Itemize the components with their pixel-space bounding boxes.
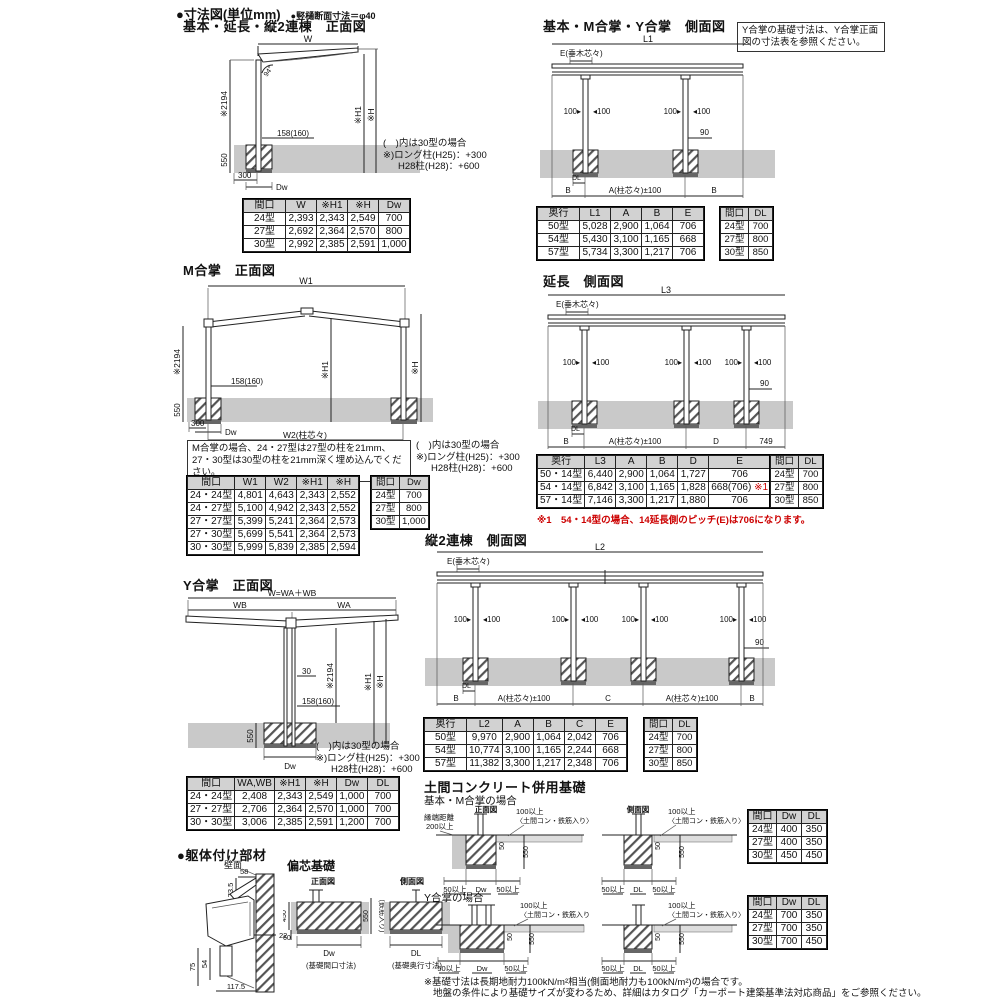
dim-pitch: ◂100: [651, 615, 669, 624]
doma-rebar: 〈土間コン・鉄筋入り〉: [668, 910, 742, 919]
dim-pitch: 100▸: [725, 358, 742, 367]
dim-dl: DL: [411, 949, 422, 958]
dim-dw: Dw: [225, 428, 237, 437]
dim-50: 50: [655, 842, 662, 850]
dim-550: 550: [679, 846, 686, 858]
dim-e: E(垂木芯々): [560, 48, 603, 58]
dim-w: W=WA＋WB: [268, 588, 317, 598]
footer-note: ※基礎寸法は長期地耐力100kN/m²相当(側面地耐力も100kN/m²)の場合…: [424, 977, 927, 999]
dim-pitch: 100▸: [564, 107, 581, 116]
dim-550: 550: [220, 153, 229, 167]
dim-450: 450: [283, 910, 288, 922]
dim-embed: 158(160): [302, 697, 334, 706]
dim-dw: Dw: [284, 762, 296, 771]
dim-550: 550: [363, 910, 370, 922]
dim-min50: 50以上: [652, 885, 676, 894]
side-basic-title: 基本・M合掌・Y合掌 側面図: [543, 16, 726, 35]
dim-300: 300: [238, 171, 252, 180]
side-ext-side-table: 間口DL24型70027型80030型850: [770, 455, 823, 508]
doma-over100: 100以上: [516, 807, 544, 816]
dim-dw-caption: (基礎間口寸法): [306, 960, 356, 970]
dim-dw: Dw: [276, 183, 288, 192]
dim-b: B: [711, 186, 716, 195]
side-basic-side-table: 間口DL24型70027型80030型850: [720, 207, 773, 260]
dim-pitch: 100▸: [664, 107, 681, 116]
front-basic-table: 間口W※H1※HDw24型2,3932,3432,54970027型2,6922…: [243, 199, 410, 252]
dim-h: ※H: [410, 361, 420, 374]
m-gassho-notes: ( )内は30型の場合 ※)ロング柱(H25)：+300 H28柱(H28)：+…: [416, 440, 520, 475]
doma-over100: 100以上: [520, 901, 548, 910]
dim-pitch: ◂100: [693, 107, 711, 116]
doma-edge-value: 200以上: [426, 822, 454, 831]
dim-dl: DL: [633, 885, 643, 894]
dim-h1: ※H1: [363, 673, 373, 691]
dim-50: 50: [655, 933, 662, 941]
dim-300: 300: [191, 419, 205, 428]
m-gassho-side-table: 間口Dw24型70027型80030型1,000: [371, 476, 429, 529]
dim-e: E(垂木芯々): [556, 299, 599, 309]
dim-wb: WB: [233, 600, 247, 610]
doma-front-label: 正面図: [475, 805, 498, 814]
dim-2194: ※2194: [172, 349, 182, 375]
dim-dl: DL: [462, 683, 471, 690]
dim-b: B: [749, 694, 754, 703]
dim-wa: WA: [337, 600, 351, 610]
dim-angle: 94°: [262, 65, 275, 78]
dim-pitch: ◂100: [754, 358, 772, 367]
dim-min50: 50以上: [504, 964, 528, 973]
dim-pitch: ◂100: [694, 358, 712, 367]
dim-50: 50: [507, 933, 514, 941]
dim-a: A(柱芯々)±100: [498, 693, 551, 703]
front-basic-notes: ( )内は30型の場合 ※)ロング柱(H25)：+300 H28柱(H28)：+…: [383, 138, 487, 173]
dim-dl: DL: [633, 964, 643, 973]
y-gassho-notes: ( )内は30型の場合 ※)ロング柱(H25)：+300 H28柱(H28)：+…: [316, 741, 420, 776]
dim-a: A(柱芯々)±100: [609, 185, 662, 195]
doma-basic-front-drawing: 正面図 縁端距離 200以上 100以上 〈土間コン・鉄筋入り〉 50 550 …: [424, 804, 589, 898]
dim-e: E(垂木芯々): [447, 556, 490, 566]
dim-550: 550: [173, 403, 182, 417]
dim-b: B: [563, 437, 568, 446]
side-ext-table: 奥行L3ABDE50・14型6,4402,9001,0641,72770654・…: [537, 455, 771, 508]
dim-pitch: ◂100: [749, 615, 767, 624]
dim-min50: 50以上: [437, 964, 461, 973]
side-2ren-side-table: 間口DL24型70027型80030型850: [644, 718, 697, 771]
m-gassho-table: 間口W1W2※H1※H24・24型4,8014,6432,3432,55224・…: [187, 476, 359, 555]
dim-h: ※H: [366, 108, 376, 121]
dim-min50: 50以上: [601, 964, 625, 973]
dim-2194: ※2194: [219, 91, 229, 117]
front-basic-drawing: W 94° ※2194 550 ※H1 ※H 158(160) 300 Dw: [150, 32, 420, 194]
dim-h1: ※H1: [320, 361, 330, 379]
dim-h: ※H: [375, 675, 385, 688]
dim-90: 90: [700, 128, 709, 137]
dim-pitch: 100▸: [552, 615, 569, 624]
dim-pitch: ◂100: [593, 107, 611, 116]
doma-edge-label: 縁端距離: [424, 812, 454, 822]
dim-h1: ※H1: [353, 106, 363, 124]
dim-b: B: [453, 694, 458, 703]
dim-embed: 158(160): [231, 377, 263, 386]
henshin-front-drawing: 正面図 450 60 550 (鉄筋入り) Dw (基礎間口寸法): [283, 872, 385, 996]
dim-550: 550: [246, 729, 255, 743]
dim-d: D: [713, 437, 719, 446]
dim-dw: Dw: [477, 964, 488, 973]
dim-dw: Dw: [323, 949, 335, 958]
dim-min50: 50以上: [601, 885, 625, 894]
dim-a: A(柱芯々)±100: [609, 436, 662, 446]
doma-basic-side-drawing: 側面図 100以上 〈土間コン・鉄筋入り〉 50 550 50以上 DL 50以…: [592, 804, 742, 898]
dim-90: 90: [760, 379, 769, 388]
dim-dl: DL: [571, 426, 580, 433]
dim-pitch: ◂100: [592, 358, 610, 367]
dim-w: W: [304, 34, 313, 44]
doma-side-label: 側面図: [626, 804, 650, 814]
dim-w2: W2(柱芯々): [283, 430, 327, 440]
dim-l2: L2: [595, 542, 605, 552]
y-gassho-table: 間口WA,WB※H1※HDwDL24・24型2,4082,3432,5491,0…: [187, 777, 399, 830]
dimension-sheet: ●寸法図(単位mm)●竪樋断面寸法＝φ40 基本・延長・縦2連棟 正面図 W 9…: [0, 0, 1000, 1000]
henshin-side-label: 側面図: [399, 876, 424, 886]
dim-75: 75: [190, 963, 197, 971]
doma-over100: 100以上: [668, 901, 696, 910]
doma-rebar: 〈土間コン・鉄筋入り〉: [668, 816, 742, 825]
dim-749: 749: [759, 437, 773, 446]
dim-550: 550: [529, 933, 536, 945]
dim-l1: L1: [643, 34, 653, 44]
dim-550: 550: [679, 933, 686, 945]
ext-red-note: ※1 54・14型の場合、14延長側のピッチ(E)は706になります。: [537, 512, 810, 526]
dim-w1: W1: [299, 276, 313, 286]
doma-rebar: 〈土間コン・鉄筋入り〉: [520, 910, 589, 919]
dim-pitch: 100▸: [720, 615, 737, 624]
dim-pitch: ◂100: [581, 615, 599, 624]
dim-min50: 50以上: [652, 964, 676, 973]
dim-54: 54: [200, 960, 209, 968]
dim-550: 550: [523, 846, 530, 858]
dim-58: 58: [240, 867, 248, 876]
dim-b: B: [565, 186, 570, 195]
dim-min50: 50以上: [496, 885, 520, 894]
dim-50: 50: [499, 842, 506, 850]
doma-rebar: 〈土間コン・鉄筋入り〉: [516, 816, 589, 825]
doma-basic-table: 間口DwDL24型40035027型40035030型450450: [748, 810, 827, 863]
side-basic-table: 奥行L1ABE50型5,0282,9001,06470654型5,4303,10…: [537, 207, 704, 260]
dim-60: 60: [283, 935, 291, 942]
dim-pitch: 100▸: [563, 358, 580, 367]
doma-y-table: 間口DwDL24型70035027型70035030型700450: [748, 896, 827, 949]
side-2ren-table: 奥行L2ABCE50型9,9702,9001,0642,04270654型10,…: [424, 718, 627, 771]
doma-over100: 100以上: [668, 807, 696, 816]
dim-2194: ※2194: [325, 663, 335, 689]
doma-y-side-drawing: 100以上 〈土間コン・鉄筋入り〉 50 550 50以上 DL 50以上: [592, 901, 742, 975]
dim-pitch: ◂100: [483, 615, 501, 624]
doma-y-front-drawing: 100以上 〈土間コン・鉄筋入り〉 50 550 50以上 Dw 50以上: [424, 901, 589, 975]
dim-a: A(柱芯々)±100: [666, 693, 719, 703]
henshin-front-label: 正面図: [311, 877, 335, 886]
dim-pitch: 100▸: [622, 615, 639, 624]
dim-c: C: [605, 694, 611, 703]
dim-pitch: 100▸: [454, 615, 471, 624]
dim-embed: 158(160): [277, 129, 309, 138]
dim-pitch: 100▸: [665, 358, 682, 367]
dim-117-5: 117.5: [227, 982, 245, 991]
dim-30: 30: [302, 667, 311, 676]
side-ext-drawing: L3 E(垂木芯々) 100▸ ◂100 100▸ ◂100 100▸ ◂100…: [538, 285, 793, 453]
dim-l3: L3: [661, 285, 671, 295]
m-gassho-drawing: W1 ※2194 550 ※H1 ※H 158(160) 300 Dw W2(柱…: [145, 274, 435, 444]
side-basic-drawing: L1 E(垂木芯々) 100▸ ◂100 100▸ ◂100 90 DL B A…: [540, 34, 775, 206]
dim-dl: DL: [572, 175, 581, 182]
side-2ren-drawing: L2 E(垂木芯々) 100▸ ◂100 100▸ ◂100 100▸ ◂100…: [425, 542, 775, 716]
